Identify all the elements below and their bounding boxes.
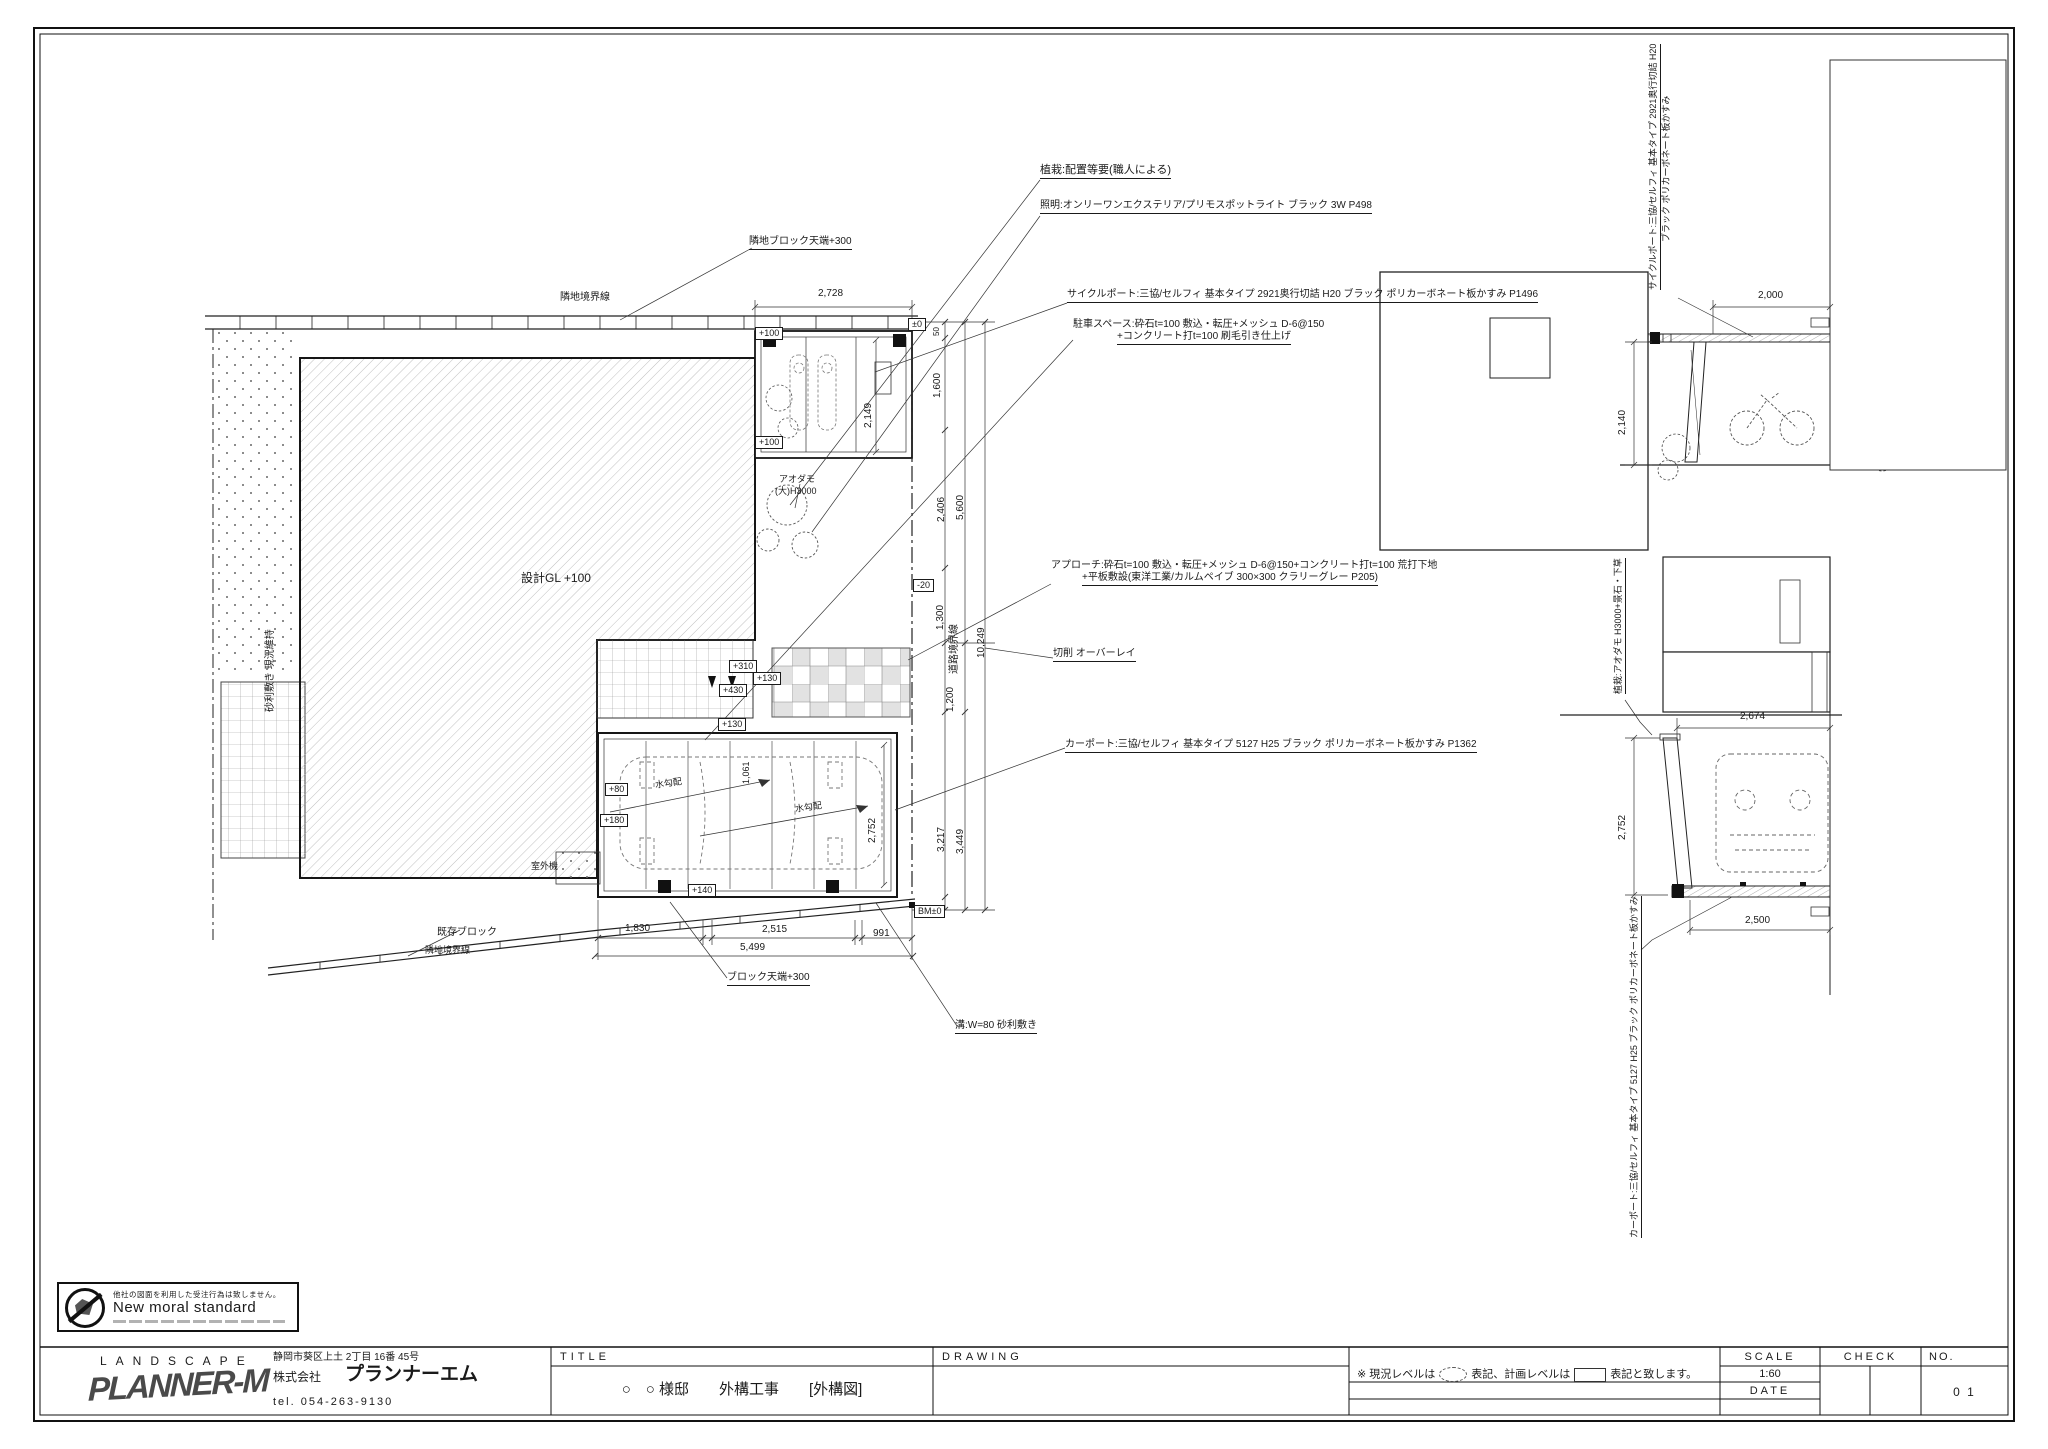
elev-cycleport-label-1: サイクルポート:三協/セルフィ 基本タイプ 2921奥行切詰 H20 [1649, 44, 1661, 290]
dim-2674: 2,674 [1740, 712, 1765, 722]
level-note-part3: 表記と致します。 [1610, 1368, 1697, 1380]
level-p310: +310 [729, 660, 757, 673]
plan-level-symbol [1574, 1368, 1606, 1382]
dim-2000: 2,000 [1758, 291, 1783, 301]
level-p100a: +100 [755, 327, 783, 340]
approach-note-1: アプローチ:砕石t=100 敷込・転圧+メッシュ D-6@150+コンクリート打… [1051, 561, 1437, 571]
scale-value: 1:60 [1720, 1369, 1820, 1380]
tree-label-1: アオダモ [779, 475, 815, 484]
gutter-note: 溝:W=80 砂利敷き [955, 1021, 1037, 1034]
boundary-label-top: 隣地境界線 [560, 293, 610, 303]
boundary-label-bottom: 隣地境界線 [425, 946, 470, 955]
company-logo: PLANNER-M [88, 1363, 268, 1405]
dim-2140: 2,140 [1618, 410, 1628, 435]
company-prefix: 株式会社 [273, 1371, 321, 1383]
gravel-label: 砂利敷き 現況維持 [266, 629, 276, 712]
dim-1830: 1,830 [625, 924, 650, 934]
company-address: 静岡市葵区上土 2丁目 16番 45号 [273, 1353, 419, 1363]
level-bm0: BM±0 [914, 905, 945, 918]
elev-cycleport-label-2: ブラック ポリカーボネート板かすみ [1662, 95, 1671, 242]
level-p430: +430 [719, 684, 747, 697]
tree-label-2: (大)H3000 [775, 487, 817, 496]
approach-note-2: +平板敷設(東洋工業/カルムペイブ 300×300 クラリーグレー P205) [1082, 573, 1378, 586]
title-label: TITLE [560, 1352, 610, 1363]
level-note: ※ 現況レベルは表記、計画レベルは表記と致します。 [1357, 1367, 1697, 1382]
design-gl-label: 設計GL +100 [521, 572, 591, 584]
carport-note: カーポート:三協/セルフィ 基本タイプ 5127 H25 ブラック ポリカーボネ… [1065, 740, 1477, 753]
elev-planting-label: 植栽:アオダモ H3000+景石・下草 [1614, 558, 1626, 694]
level-note-part1: ※ 現況レベルは [1357, 1368, 1435, 1380]
dim-5499: 5,499 [740, 943, 765, 953]
light-note: 照明:オンリーワンエクステリア/プリモスポットライト ブラック 3W P498 [1040, 201, 1372, 214]
level-p100b: +100 [755, 436, 783, 449]
level-p80: +80 [605, 783, 628, 796]
level-p180: +180 [600, 814, 628, 827]
dim-1300: 1,300 [936, 605, 946, 630]
dim-2515: 2,515 [762, 925, 787, 935]
dim-1061: 1,061 [742, 761, 751, 784]
overlay-note: 切削 オーバーレイ [1053, 649, 1136, 662]
cycleport-note: サイクルポート:三協/セルフィ 基本タイプ 2921奥行切詰 H20 ブラック … [1067, 290, 1538, 303]
company-name: プランナーエム [345, 1365, 478, 1384]
dim-10249: 10,249 [977, 627, 987, 658]
parking-note-2: +コンクリート打t=100 刷毛引き仕上げ [1117, 332, 1291, 345]
scale-label: SCALE [1720, 1352, 1820, 1363]
dim-2500: 2,500 [1745, 916, 1770, 926]
dim-2149: 2,149 [864, 403, 874, 428]
level-p140: +140 [688, 884, 716, 897]
drawing-linework [0, 0, 2048, 1449]
dim-3217: 3,217 [937, 827, 947, 852]
no-label: NO. [1929, 1352, 1955, 1363]
level-pm0: ±0 [908, 318, 926, 331]
stamp-fine-print [113, 1320, 285, 1323]
neighbor-block-note: 隣地ブロック天端+300 [749, 237, 852, 250]
current-level-symbol [1439, 1367, 1467, 1382]
road-boundary-label: 道路境界線 [950, 624, 960, 674]
level-p130a: +130 [753, 672, 781, 685]
date-label: DATE [1720, 1386, 1820, 1397]
dim-2752-plan: 2,752 [868, 818, 878, 843]
stamp-slogan: New moral standard [113, 1299, 256, 1316]
parking-note-1: 駐車スペース:砕石t=100 敷込・転圧+メッシュ D-6@150 [1073, 320, 1324, 330]
level-p130b: +130 [718, 718, 746, 731]
no-copy-icon [65, 1288, 105, 1328]
drawing-label: DRAWING [942, 1352, 1023, 1363]
level-m20: -20 [913, 579, 934, 592]
dim-50-top: 50 [933, 327, 941, 336]
drawing-title: ○ ○ 様邸 外構工事 [外構図] [551, 1382, 933, 1397]
plant-note: 植栽:配置等要(職人による) [1040, 165, 1171, 179]
existing-block-label: 既存ブロック [437, 928, 497, 938]
block-top-note: ブロック天端+300 [727, 973, 810, 986]
dim-991: 991 [873, 929, 890, 939]
company-tel: tel. 054-263-9130 [273, 1397, 393, 1408]
drawing-sheet: 植栽:配置等要(職人による)照明:オンリーワンエクステリア/プリモスポットライト… [0, 0, 2048, 1449]
dim-5600: 5,600 [956, 495, 966, 520]
dim-1600: 1,600 [933, 373, 943, 398]
sheet-number: 0 1 [1921, 1386, 2008, 1398]
elev-carport-label: カーポート:三協/セルフィ 基本タイプ 5127 H25 ブラック ポリカーボネ… [1630, 896, 1642, 1238]
outdoor-unit-label: 室外機 [531, 862, 558, 871]
dim-2728: 2,728 [818, 289, 843, 299]
dim-2406: 2,406 [937, 497, 947, 522]
level-note-part2: 表記、計画レベルは [1471, 1368, 1570, 1380]
dim-1200: 1,200 [946, 687, 956, 712]
check-label: CHECK [1820, 1352, 1921, 1363]
dim-2752-elev: 2,752 [1618, 815, 1628, 840]
dim-3449: 3,449 [956, 829, 966, 854]
company-stamp: 他社の図面を利用した受注行為は致しません。 New moral standard [57, 1282, 299, 1332]
